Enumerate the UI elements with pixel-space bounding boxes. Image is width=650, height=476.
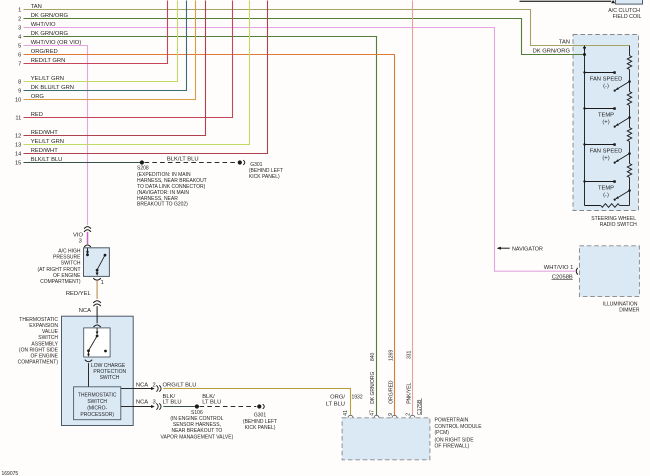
svg-text:1: 1 — [18, 8, 21, 14]
svg-text:LT BLU: LT BLU — [202, 400, 221, 406]
svg-text:KICK PANEL): KICK PANEL) — [249, 174, 280, 180]
svg-text:ORG/RED: ORG/RED — [31, 49, 58, 55]
svg-text:BLK/LT BLU: BLK/LT BLU — [31, 157, 63, 163]
svg-text:WHT/VIO 1: WHT/VIO 1 — [544, 265, 574, 271]
svg-text:(+): (+) — [602, 119, 609, 125]
svg-text:11: 11 — [15, 116, 21, 122]
svg-text:(-): (-) — [603, 83, 609, 89]
svg-text:RED/WHT: RED/WHT — [31, 148, 59, 154]
svg-text:TEMP: TEMP — [598, 113, 614, 119]
svg-text:(EXPEDITION: IN MAIN: (EXPEDITION: IN MAIN — [137, 172, 191, 178]
svg-text:PRESSURE: PRESSURE — [53, 255, 81, 261]
svg-text:RED/LT GRN: RED/LT GRN — [31, 58, 66, 64]
svg-text:(ON RIGHT SIDE: (ON RIGHT SIDE — [435, 438, 475, 444]
svg-text:EXPANSION: EXPANSION — [29, 323, 58, 329]
svg-text:DK GRN/ORG: DK GRN/ORG — [533, 49, 571, 55]
svg-text:ASSEMBLY: ASSEMBLY — [31, 341, 58, 347]
svg-text:DIMMER: DIMMER — [619, 308, 640, 314]
svg-text:THERMOSTATIC: THERMOSTATIC — [78, 392, 117, 398]
svg-text:POWERTRAIN: POWERTRAIN — [435, 418, 469, 424]
svg-text:A/C CLUTCH: A/C CLUTCH — [608, 8, 640, 14]
svg-text:FIELD COIL: FIELD COIL — [613, 14, 642, 20]
svg-text:(+): (+) — [602, 155, 609, 161]
svg-text:OF FIREWALL): OF FIREWALL) — [435, 444, 470, 450]
svg-text:840: 840 — [370, 352, 376, 361]
svg-text:COMPARTMENT): COMPARTMENT) — [18, 360, 59, 366]
svg-text:(PCM): (PCM) — [435, 430, 450, 436]
svg-text:(NAVIGATOR: IN MAIN: (NAVIGATOR: IN MAIN — [137, 190, 189, 196]
svg-text:SWITCH: SWITCH — [38, 335, 58, 341]
svg-text:TEMP: TEMP — [598, 186, 614, 192]
svg-text:RED/YEL: RED/YEL — [66, 291, 92, 297]
svg-text:STEERING WHEEL: STEERING WHEEL — [591, 216, 636, 222]
svg-text:(BEHIND LEFT: (BEHIND LEFT — [243, 419, 277, 425]
svg-text:NCA: NCA — [136, 400, 148, 406]
svg-text:331: 331 — [406, 350, 412, 359]
svg-text:ILLUMINATION: ILLUMINATION — [603, 302, 638, 308]
svg-text:3: 3 — [18, 26, 21, 32]
svg-text:10: 10 — [15, 98, 21, 104]
svg-text:DK GRN/ORG: DK GRN/ORG — [370, 371, 376, 403]
svg-text:CONTROL MODULE: CONTROL MODULE — [435, 424, 483, 430]
svg-text:ORG/: ORG/ — [330, 395, 345, 401]
svg-text:(ON RIGHT SIDE: (ON RIGHT SIDE — [19, 347, 59, 353]
svg-text:41: 41 — [343, 410, 349, 416]
svg-text:SWITCH: SWITCH — [87, 399, 107, 405]
svg-text:8: 8 — [18, 80, 21, 86]
svg-text:1269: 1269 — [389, 350, 395, 361]
svg-text:(AT RIGHT FRONT: (AT RIGHT FRONT — [37, 267, 80, 273]
svg-text:6: 6 — [18, 53, 21, 59]
svg-text:15: 15 — [15, 161, 21, 167]
svg-text:G301: G301 — [250, 162, 262, 168]
svg-text:2: 2 — [405, 413, 411, 416]
svg-text:RED/WHT: RED/WHT — [31, 130, 59, 136]
svg-text:SWITCH: SWITCH — [100, 375, 120, 381]
svg-text:THERMOSTATIC: THERMOSTATIC — [19, 317, 58, 323]
svg-text:KICK PANEL): KICK PANEL) — [245, 425, 276, 431]
svg-text:2: 2 — [18, 17, 21, 23]
svg-text:7: 7 — [18, 62, 21, 68]
svg-text:VAPOR MANAGEMENT VALVE): VAPOR MANAGEMENT VALVE) — [161, 434, 234, 440]
svg-text:RADIO SWITCH: RADIO SWITCH — [600, 222, 637, 228]
svg-text:S208: S208 — [137, 165, 149, 171]
svg-text:5: 5 — [18, 44, 21, 50]
svg-text:NEAR BREAKOUT TO: NEAR BREAKOUT TO — [171, 428, 222, 434]
svg-text:3: 3 — [153, 400, 156, 406]
svg-text:WHT/VIO: WHT/VIO — [31, 22, 56, 28]
svg-text:OF ENGINE: OF ENGINE — [53, 273, 81, 279]
svg-text:47: 47 — [369, 410, 375, 416]
svg-text:PNK/YEL: PNK/YEL — [406, 382, 412, 403]
svg-text:ORG/RED: ORG/RED — [389, 380, 395, 404]
svg-text:12: 12 — [15, 134, 21, 140]
svg-text:A/C HIGH: A/C HIGH — [58, 249, 81, 255]
svg-text:G301: G301 — [254, 413, 266, 419]
svg-text:FAN SPEED: FAN SPEED — [590, 149, 623, 155]
svg-text:DK GRN/ORG: DK GRN/ORG — [31, 31, 69, 37]
svg-text:LOW CHARGE: LOW CHARGE — [91, 363, 126, 369]
svg-text:3: 3 — [79, 239, 82, 245]
svg-text:(-): (-) — [603, 192, 609, 198]
svg-text:TAN: TAN — [31, 4, 42, 10]
svg-text:BLK/LT BLU: BLK/LT BLU — [167, 156, 199, 162]
svg-text:9: 9 — [388, 413, 394, 416]
svg-text:9: 9 — [18, 89, 21, 95]
svg-text:1932: 1932 — [352, 395, 363, 401]
svg-text:SENSOR HARNESS,: SENSOR HARNESS, — [173, 422, 221, 428]
svg-text:14: 14 — [15, 152, 21, 158]
svg-text:LT BLU: LT BLU — [326, 401, 345, 407]
svg-text:DK GRN/ORG: DK GRN/ORG — [31, 13, 69, 19]
svg-text:13: 13 — [15, 143, 21, 149]
svg-text:SWITCH: SWITCH — [61, 261, 81, 267]
svg-text:2: 2 — [153, 382, 156, 388]
svg-text:COMPARTMENT): COMPARTMENT) — [40, 279, 81, 285]
svg-text:PROTECTION: PROTECTION — [93, 369, 126, 375]
svg-text:S106: S106 — [191, 410, 203, 416]
svg-text:(IN ENGINE CONTROL: (IN ENGINE CONTROL — [170, 416, 223, 422]
svg-text:YEL/LT GRN: YEL/LT GRN — [31, 76, 64, 82]
svg-text:RED: RED — [31, 112, 43, 118]
svg-text:C175B: C175B — [417, 399, 423, 415]
svg-text:1: 1 — [101, 280, 104, 286]
svg-text:ORG/LT BLU: ORG/LT BLU — [163, 383, 197, 389]
svg-text:VALUE: VALUE — [42, 329, 59, 335]
svg-text:WHT/VIO (OR VIO): WHT/VIO (OR VIO) — [31, 40, 82, 46]
svg-text:TAN: TAN — [559, 40, 570, 46]
svg-text:FAN SPEED: FAN SPEED — [590, 77, 623, 83]
svg-text:YEL/LT GRN: YEL/LT GRN — [31, 139, 64, 145]
svg-text:OF ENGINE: OF ENGINE — [30, 354, 58, 360]
svg-text:(MICRO-: (MICRO- — [87, 406, 107, 412]
svg-text:NAVIGATOR: NAVIGATOR — [512, 246, 543, 252]
svg-text:HARNESS, NEAR BREAKOUT: HARNESS, NEAR BREAKOUT — [137, 178, 207, 184]
svg-text:NCA: NCA — [79, 308, 91, 314]
svg-text:ORG: ORG — [31, 94, 45, 100]
svg-text:NCA: NCA — [136, 382, 148, 388]
svg-text:LT BLU: LT BLU — [163, 400, 182, 406]
svg-text:169075: 169075 — [2, 471, 19, 476]
svg-text:4: 4 — [18, 35, 21, 41]
svg-text:DK BLU/LT GRN: DK BLU/LT GRN — [31, 85, 74, 91]
svg-text:PROCESSOR): PROCESSOR) — [80, 412, 114, 418]
svg-text:BREAKOUT TO G202): BREAKOUT TO G202) — [137, 202, 188, 208]
